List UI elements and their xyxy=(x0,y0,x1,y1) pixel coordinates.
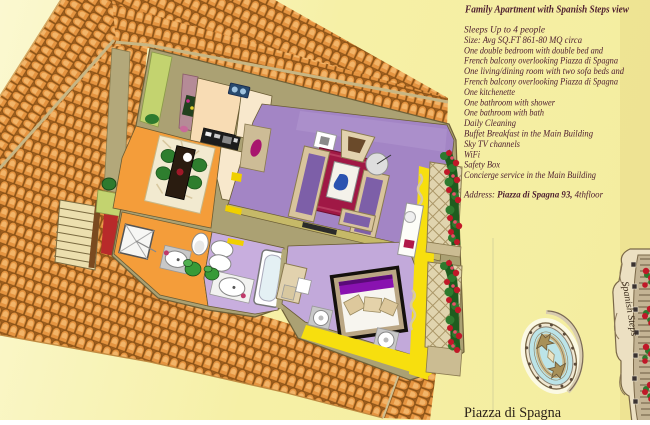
svg-text:Address: Piazza di Spagna 93,: Address: Piazza di Spagna 93, 4thfloor xyxy=(463,190,603,201)
svg-text:Size: Avg SQ.FT 861-80 MQ circ: Size: Avg SQ.FT 861-80 MQ circa xyxy=(464,36,582,46)
svg-text:Sleeps Up to 4 people: Sleeps Up to 4 people xyxy=(464,26,545,36)
svg-text:Safety Box: Safety Box xyxy=(464,160,501,171)
svg-text:Piazza di Spagna: Piazza di Spagna xyxy=(464,405,561,420)
svg-text:One living/dining room with tw: One living/dining room with two sofa bed… xyxy=(464,66,624,77)
svg-text:One bathroom with bath: One bathroom with bath xyxy=(464,109,544,119)
svg-text:French balcony overlooking Pia: French balcony overlooking Piazza di Spa… xyxy=(463,57,618,67)
svg-text:Concierge service in the Main: Concierge service in the Main Building xyxy=(464,171,596,181)
svg-text:One kitchenette: One kitchenette xyxy=(464,88,515,98)
svg-text:French balcony overlooking Pia: French balcony overlooking Piazza di Spa… xyxy=(463,78,618,88)
svg-text:Buffet Breakfast in the Main B: Buffet Breakfast in the Main Building xyxy=(464,129,593,140)
svg-text:Family Apartment with Spanish: Family Apartment with Spanish Steps view xyxy=(464,5,630,16)
svg-text:One double bedroom with double: One double bedroom with double bed and xyxy=(464,46,603,56)
svg-text:Daily Cleaning: Daily Cleaning xyxy=(463,119,516,129)
svg-text:Sky TV channels: Sky TV channels xyxy=(464,140,520,150)
svg-text:WiFi: WiFi xyxy=(464,150,480,160)
svg-text:One bathroom with shower: One bathroom with shower xyxy=(464,98,555,108)
